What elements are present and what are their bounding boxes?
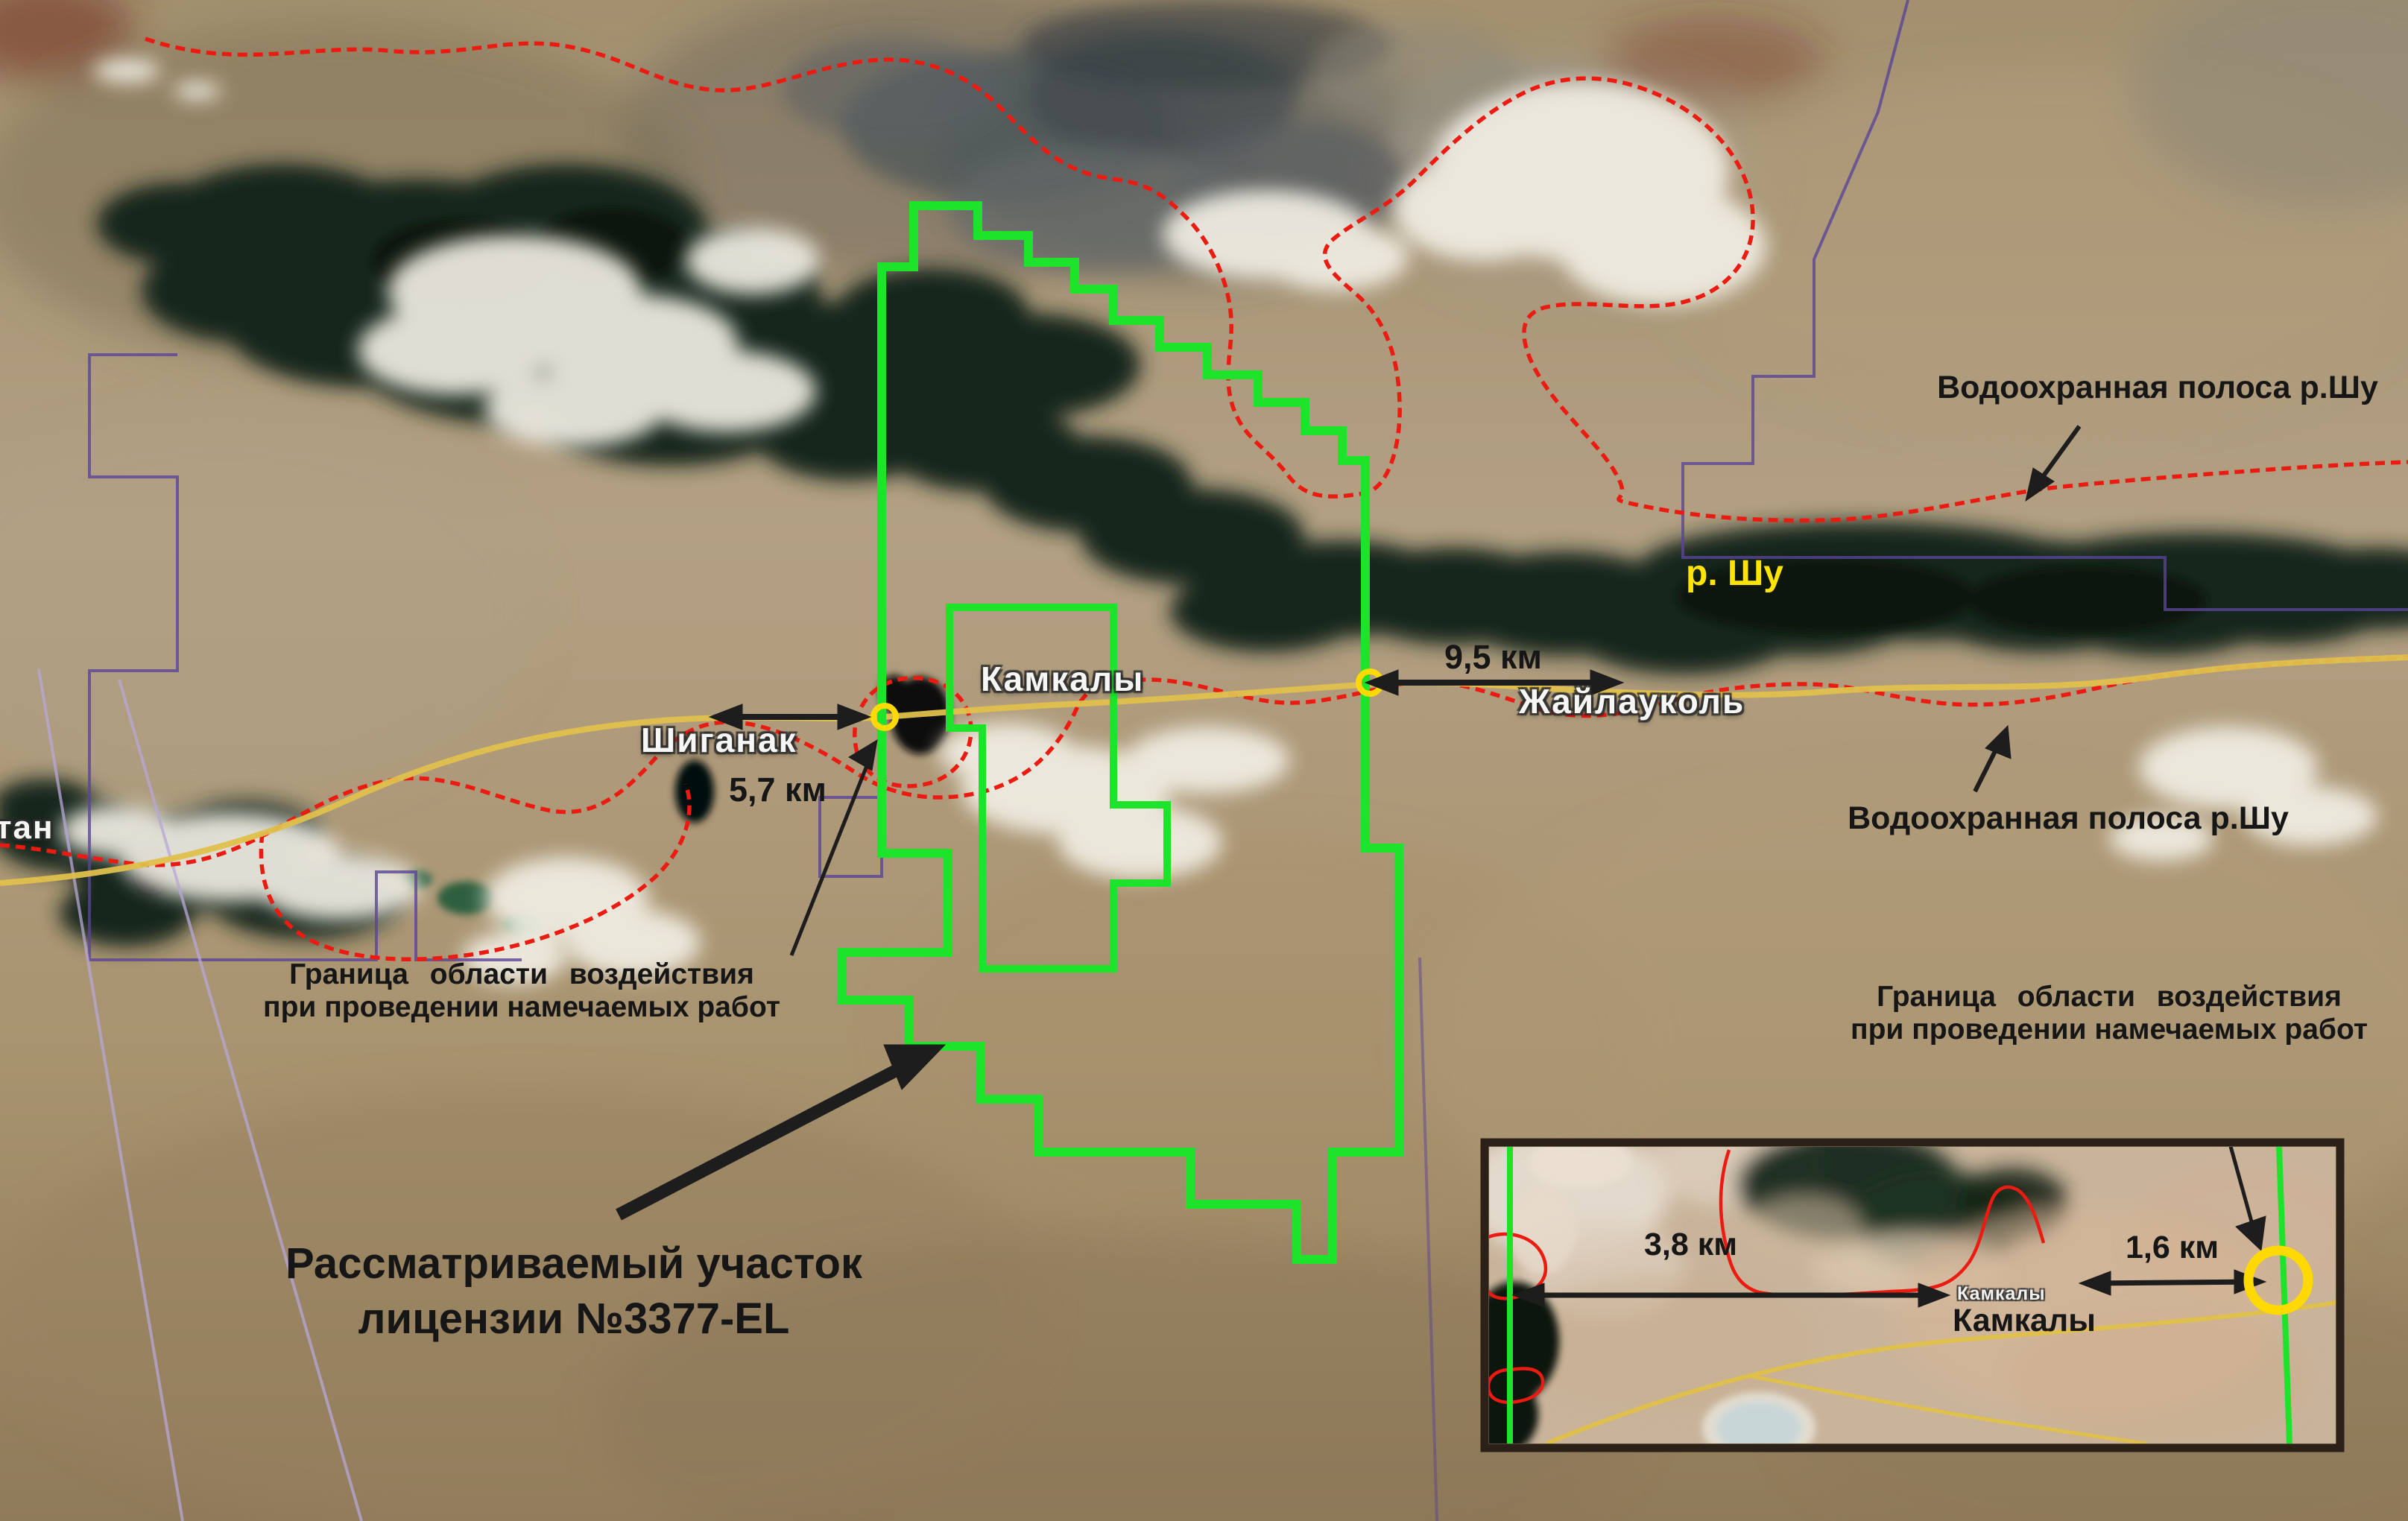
distance-1-6: 1,6 км xyxy=(2126,1230,2219,1266)
license-area-line2: лицензии №3377-EL xyxy=(216,1294,932,1344)
inset-town-label-big: Камкалы xyxy=(1953,1303,2096,1339)
water-strip-top-label: Водоохранная полоса р.Шу xyxy=(1897,370,2408,406)
impact-zone-left-line2: при проведении намечаемых работ xyxy=(224,991,820,1024)
water-strip-mid-label: Водоохранная полоса р.Шу xyxy=(1822,800,2314,837)
distance-5-7: 5,7 км xyxy=(729,771,827,809)
river-shu-label: р. Шу xyxy=(1686,553,1783,594)
place-shiganak: Шиганак xyxy=(641,720,797,760)
satellite-basemap xyxy=(0,0,2408,1521)
distance-3-8: 3,8 км xyxy=(1644,1227,1737,1263)
inset-town-label-small: Камкалы xyxy=(1957,1283,2046,1305)
place-edge-partial: тан xyxy=(0,809,54,847)
license-area-line1: Рассматриваемый участок xyxy=(216,1239,932,1288)
impact-zone-left-line1: Граница области воздействия xyxy=(224,958,820,991)
place-zhailaukol: Жайлауколь xyxy=(1519,681,1745,721)
impact-zone-right-line1: Граница области воздействия xyxy=(1811,981,2407,1014)
map-figure: Водоохранная полоса р.Шу Водоохранная по… xyxy=(0,0,2408,1521)
distance-9-5: 9,5 км xyxy=(1444,638,1542,677)
place-kamkaly: Камкалы xyxy=(981,659,1144,699)
impact-zone-right-line2: при проведении намечаемых работ xyxy=(1811,1014,2407,1046)
